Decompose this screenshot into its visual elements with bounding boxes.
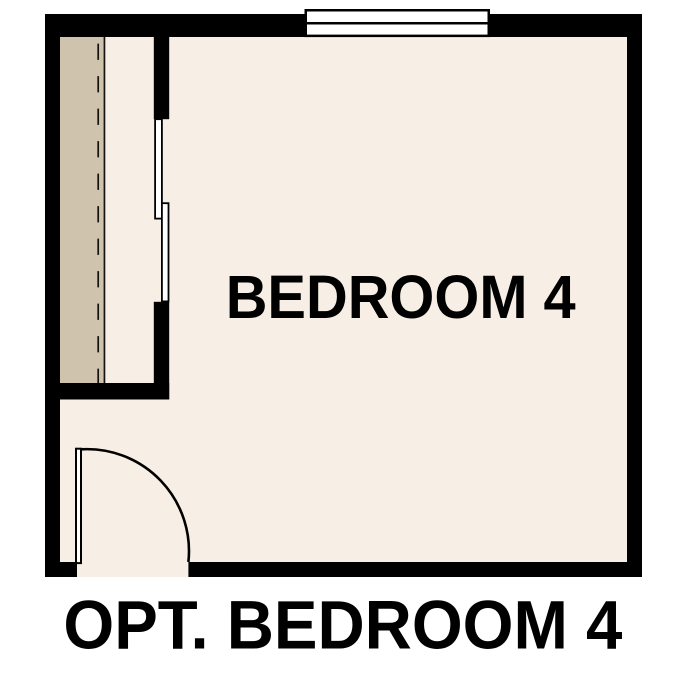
svg-text:BEDROOM 4: BEDROOM 4: [226, 263, 576, 331]
svg-text:OPT. BEDROOM 4: OPT. BEDROOM 4: [63, 587, 622, 664]
